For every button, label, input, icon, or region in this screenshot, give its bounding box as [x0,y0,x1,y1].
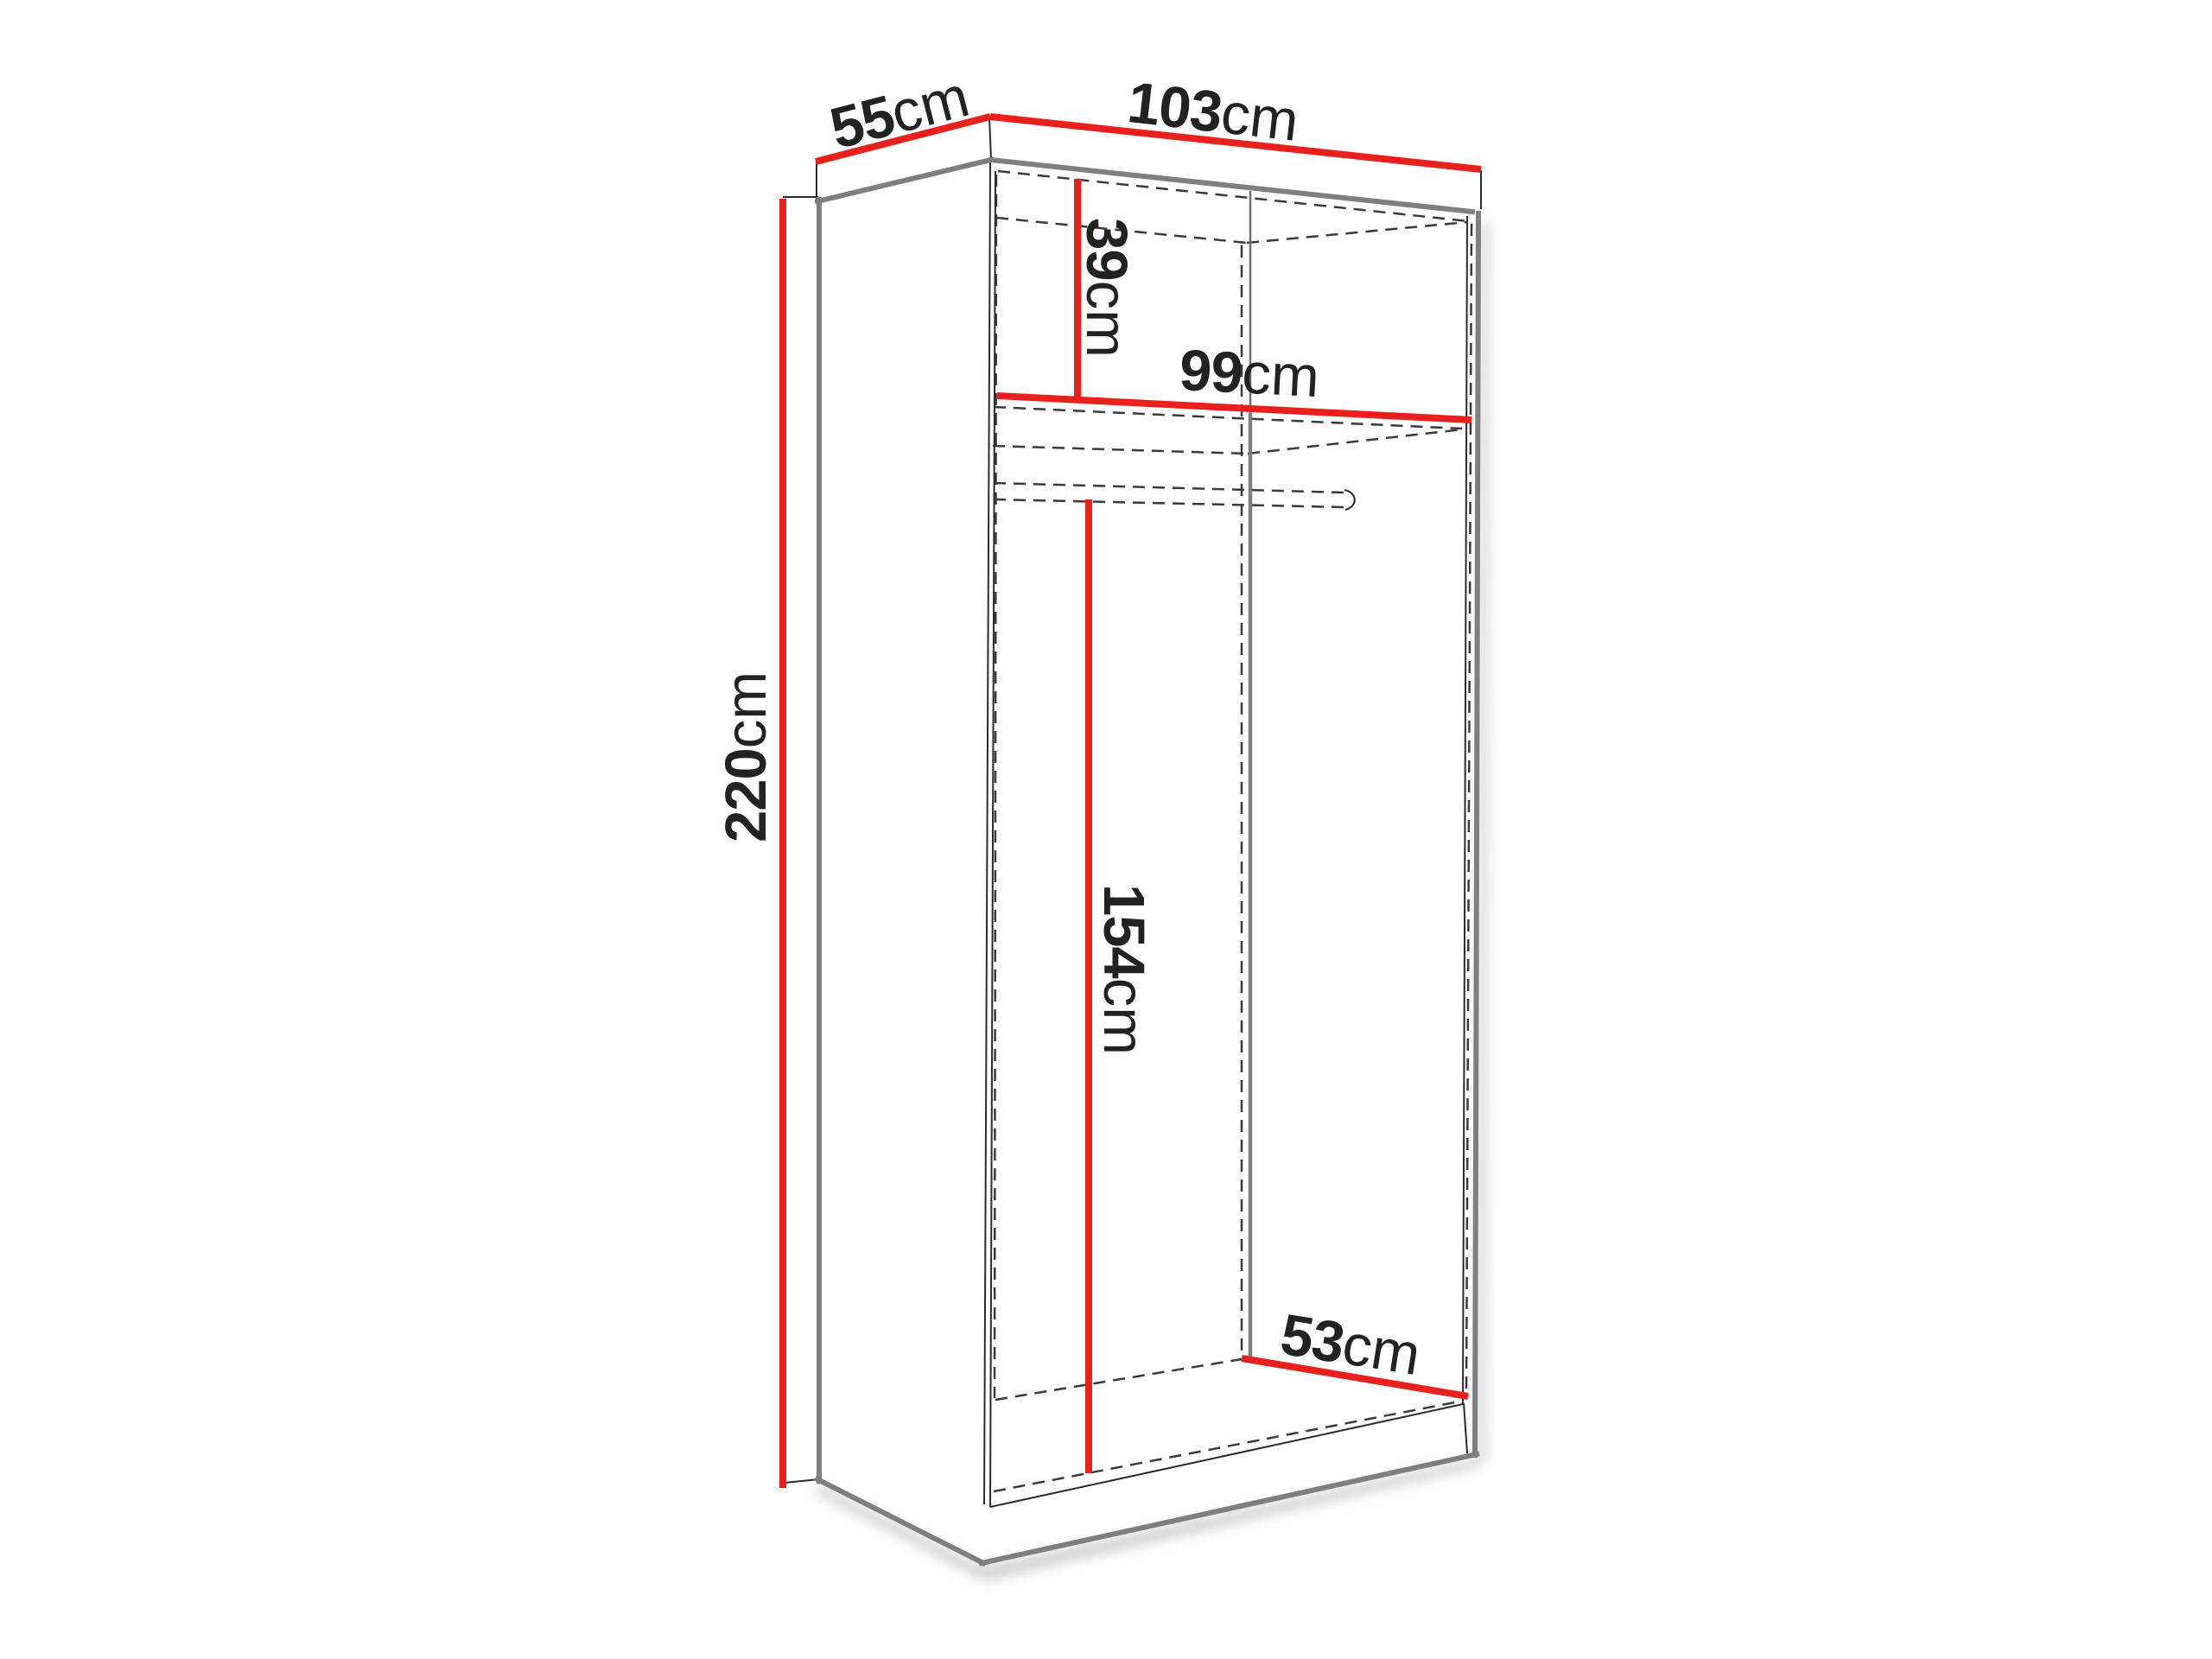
dimension-unit-width-top: cm [1217,80,1301,154]
bottom-side-edge [817,1479,983,1563]
dimension-unit-interior-width: cm [1241,340,1321,410]
plinth-top-edge [990,1404,1463,1507]
left-front-outer [984,162,990,1504]
right-foot-edge [1464,1403,1467,1453]
tick-top-peak [989,118,991,159]
dimension-label-depth-top: 55cm [823,63,975,161]
ceiling-joint-right [1247,222,1467,243]
top-front-edge [991,160,1472,212]
dimension-label-width-top: 103cm [1124,70,1301,154]
dimension-unit-hanging-height: cm [1092,978,1157,1055]
dimension-unit-interior-depth: cm [1338,1312,1425,1388]
dimension-value-shelf-height: 39 [1075,218,1140,281]
bottom-front-edge [982,1454,1477,1563]
top-side-edge [817,160,991,201]
shelf-front-right [1248,429,1462,454]
dimension-unit-depth-top: cm [884,63,975,145]
dimension-label-hanging-height: 154cm [1092,884,1157,1055]
wardrobe-diagram: 55cm103cm39cm99cm220cm154cm53cm [0,0,2212,1659]
right-outer-edge [1475,213,1478,1455]
ceiling-back-edge [998,171,1468,221]
dimension-unit-total-height: cm [714,671,779,748]
dimension-value-interior-width: 99 [1178,337,1243,405]
dimension-value-hanging-height: 154 [1092,884,1157,979]
hanging-rod-bottom [994,499,1344,507]
dimension-value-width-top: 103 [1124,70,1225,145]
dimension-label-interior-width: 99cm [1178,337,1321,409]
wardrobe-diagram-canvas: 55cm103cm39cm99cm220cm154cm53cm [0,0,2212,1659]
dimension-value-total-height: 220 [714,748,779,842]
shelf-front-left [993,446,1248,454]
dimension-value-interior-depth: 53 [1276,1301,1348,1375]
dimension-unit-shelf-height: cm [1075,281,1140,358]
hanging-rod-top [994,483,1344,493]
hanging-rod-end-cap [1344,490,1355,510]
dimension-label-shelf-height: 39cm [1075,218,1140,358]
floor-back-left [995,1359,1242,1400]
dimension-label-interior-depth: 53cm [1276,1301,1425,1387]
tick-220-bottom [785,1479,819,1483]
dimension-label-total-height: 220cm [714,671,779,842]
